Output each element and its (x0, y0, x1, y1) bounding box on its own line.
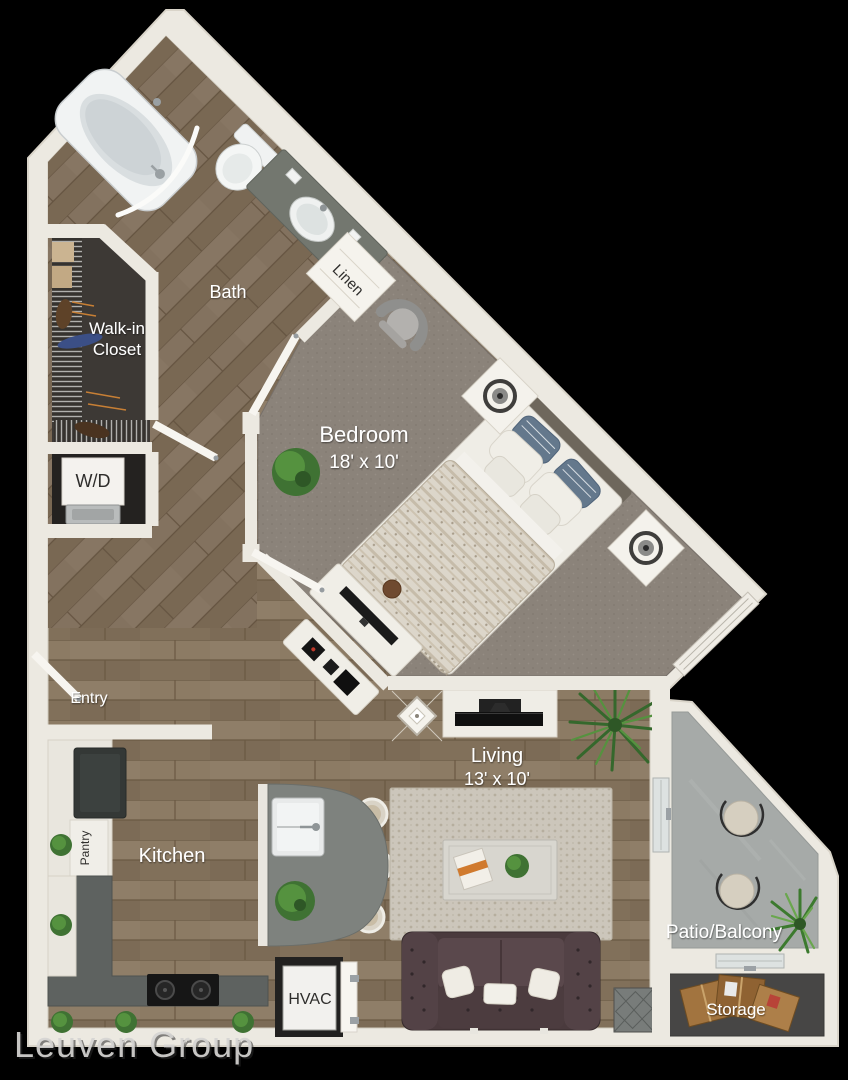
storage-label: Storage (706, 1000, 766, 1019)
kitchen-island-group (258, 784, 392, 946)
floorplan-image: Linen (0, 0, 848, 1080)
television (455, 712, 543, 726)
entry-label: Entry (70, 690, 107, 707)
shrub (50, 834, 72, 856)
sofa (402, 932, 600, 1034)
watermark-text: Leuven Group (14, 1024, 254, 1065)
pendant-light (392, 691, 442, 741)
sofa-arm (564, 932, 600, 1030)
shower-head (153, 98, 161, 106)
sofa-arm (402, 932, 438, 1030)
wire-shelf-left (52, 238, 82, 422)
bedroom-dims: 18' x 10' (329, 452, 399, 473)
floor-vent (614, 988, 654, 1032)
storage-bin (52, 266, 72, 288)
island-plant (275, 881, 315, 921)
throw-pillow (484, 983, 517, 1004)
pantry-label: Pantry (78, 831, 92, 866)
bedroom-label: Bedroom (319, 422, 408, 447)
kitchen-label: Kitchen (139, 845, 206, 867)
storage-bin (52, 242, 74, 262)
patio-door (653, 778, 671, 852)
storage-door (716, 954, 784, 971)
laundry-label: W/D (76, 471, 111, 491)
shrub (50, 914, 72, 936)
floorplan-svg: Linen (0, 0, 848, 1080)
throw-pillow (527, 967, 560, 1000)
bath-label: Bath (209, 282, 246, 302)
watermark: Leuven Group Leuven Group (14, 1024, 256, 1067)
island-base (258, 784, 268, 946)
throw-pillow (441, 965, 475, 999)
hvac-label: HVAC (288, 991, 331, 1008)
living-dims: 13' x 10' (464, 769, 530, 789)
walk-in-closet-label-line1: Walk-in (89, 319, 145, 338)
desk-chair (383, 580, 401, 598)
walk-in-closet-label-line2: Closet (93, 340, 141, 359)
living-label: Living (471, 745, 523, 767)
patio-label: Patio/Balcony (666, 922, 783, 943)
bedroom-plant (272, 448, 320, 496)
box-label (724, 981, 737, 996)
